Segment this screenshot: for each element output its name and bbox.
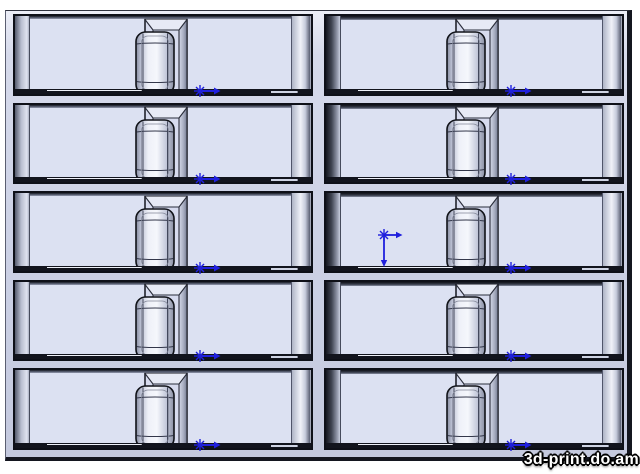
origin-x-arrow-head — [396, 232, 403, 238]
slot-right-wall — [602, 370, 622, 448]
slot-bottom-wall — [326, 354, 622, 359]
slot-left-wall — [15, 282, 30, 360]
pocket-right-wall — [179, 373, 187, 447]
slot-left-wall — [326, 193, 341, 271]
point-arrow-head — [214, 353, 221, 360]
slot-right-wall — [291, 193, 311, 271]
point-arrow-head — [525, 353, 532, 360]
pocket-right-wall — [490, 196, 498, 270]
slot-r1c2[interactable] — [324, 14, 624, 96]
tray-panel — [5, 10, 632, 461]
sketch-point-icon[interactable] — [504, 438, 532, 452]
slot-bottom-wall — [326, 443, 622, 448]
container-model[interactable] — [441, 372, 501, 448]
container-model[interactable] — [130, 106, 190, 182]
point-arrow-head — [525, 264, 532, 271]
slot-right-wall — [291, 16, 311, 94]
origin-icon[interactable] — [376, 227, 406, 269]
slot-r4c2[interactable] — [324, 280, 624, 362]
slot-bottom-wall — [15, 266, 311, 271]
origin-y-arrow-head — [381, 260, 387, 267]
slot-left-wall — [15, 16, 30, 94]
slot-right-wall — [602, 193, 622, 271]
slot-r3c1[interactable] — [13, 191, 313, 273]
sketch-point-icon[interactable] — [193, 438, 221, 452]
point-arrow-head — [214, 87, 221, 94]
pocket-right-wall — [179, 285, 187, 359]
container-model[interactable] — [441, 283, 501, 359]
slot-right-wall — [291, 282, 311, 360]
slot-left-wall — [326, 16, 341, 94]
pocket-right-wall — [179, 196, 187, 270]
sketch-point-icon[interactable] — [193, 349, 221, 363]
sketch-point-icon[interactable] — [504, 349, 532, 363]
sketch-point-icon[interactable] — [193, 172, 221, 186]
slot-bottom-wall — [15, 177, 311, 182]
slot-bottom-wall — [326, 89, 622, 94]
container-model[interactable] — [130, 195, 190, 271]
slot-left-wall — [326, 105, 341, 183]
pocket-right-wall — [179, 19, 187, 93]
slot-left-wall — [326, 282, 341, 360]
container-model[interactable] — [441, 18, 501, 94]
pocket-right-wall — [179, 108, 187, 182]
slot-right-wall — [602, 16, 622, 94]
container-model[interactable] — [441, 106, 501, 182]
container-model[interactable] — [130, 283, 190, 359]
point-arrow-head — [525, 87, 532, 94]
sketch-point-icon[interactable] — [504, 84, 532, 98]
pocket-right-wall — [490, 19, 498, 93]
pocket-right-wall — [490, 108, 498, 182]
slot-r4c1[interactable] — [13, 280, 313, 362]
slot-r3c2[interactable] — [324, 191, 624, 273]
slot-r5c2[interactable] — [324, 368, 624, 450]
slot-bottom-wall — [15, 354, 311, 359]
pocket-right-wall — [490, 373, 498, 447]
slot-left-wall — [15, 193, 30, 271]
slot-left-wall — [326, 370, 341, 448]
slot-left-wall — [15, 370, 30, 448]
slot-r2c1[interactable] — [13, 103, 313, 185]
slot-bottom-wall — [15, 89, 311, 94]
point-arrow-head — [214, 176, 221, 183]
cad-viewport[interactable]: 3d-print.do.am — [0, 0, 640, 474]
slot-bottom-wall — [15, 443, 311, 448]
container-model[interactable] — [441, 195, 501, 271]
slot-left-wall — [15, 105, 30, 183]
sketch-point-icon[interactable] — [193, 261, 221, 275]
slot-right-wall — [291, 370, 311, 448]
slot-r1c1[interactable] — [13, 14, 313, 96]
sketch-point-icon[interactable] — [193, 84, 221, 98]
slot-right-wall — [291, 105, 311, 183]
point-arrow-head — [214, 264, 221, 271]
pocket-right-wall — [490, 285, 498, 359]
sketch-point-icon[interactable] — [504, 261, 532, 275]
slot-grid — [13, 14, 624, 450]
slot-right-wall — [602, 282, 622, 360]
watermark: 3d-print.do.am — [524, 451, 639, 469]
point-arrow-head — [214, 441, 221, 448]
slot-bottom-wall — [326, 177, 622, 182]
slot-right-wall — [602, 105, 622, 183]
point-arrow-head — [525, 441, 532, 448]
sketch-point-icon[interactable] — [504, 172, 532, 186]
slot-bottom-wall — [326, 266, 622, 271]
point-arrow-head — [525, 176, 532, 183]
slot-r5c1[interactable] — [13, 368, 313, 450]
container-model[interactable] — [130, 18, 190, 94]
slot-r2c2[interactable] — [324, 103, 624, 185]
container-model[interactable] — [130, 372, 190, 448]
